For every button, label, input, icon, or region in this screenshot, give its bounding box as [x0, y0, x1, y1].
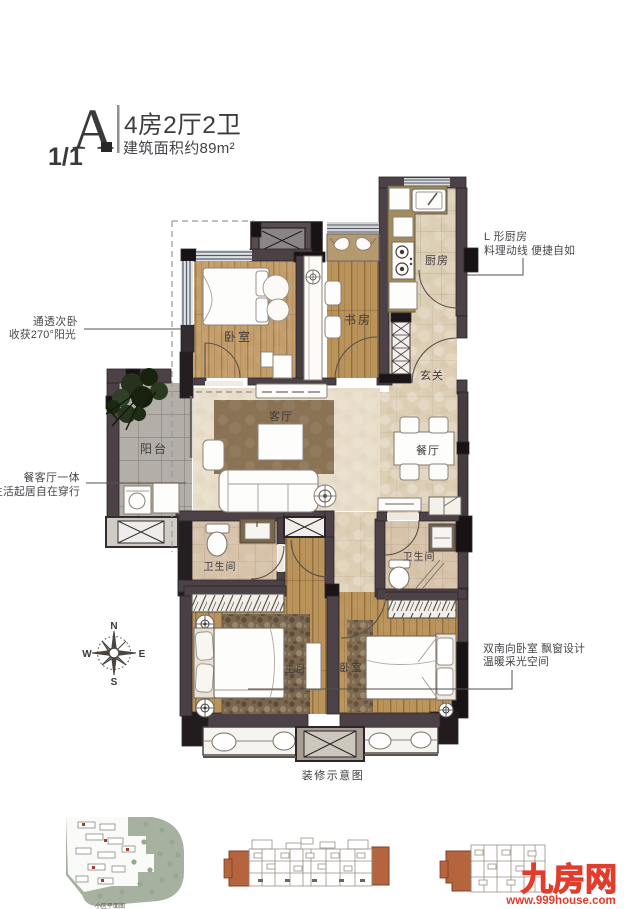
svg-text:玄关: 玄关	[420, 368, 444, 382]
svg-text:九房网: 九房网	[521, 861, 617, 897]
svg-text:装修示意图: 装修示意图	[302, 768, 365, 782]
svg-text:料理动线 便捷自如: 料理动线 便捷自如	[484, 243, 575, 257]
svg-text:卧室: 卧室	[224, 329, 252, 344]
svg-text:双南向卧室 飘窗设计: 双南向卧室 飘窗设计	[483, 641, 585, 655]
svg-text:E: E	[139, 649, 146, 660]
svg-text:阳台: 阳台	[140, 441, 168, 456]
svg-text:厨房: 厨房	[425, 254, 449, 267]
svg-text:温暖采光空间: 温暖采光空间	[483, 654, 549, 668]
svg-text:1/1: 1/1	[48, 143, 83, 171]
svg-text:建筑面积约89m²: 建筑面积约89m²	[123, 140, 235, 157]
svg-text:卫生间: 卫生间	[403, 550, 436, 563]
svg-text:小区平面图: 小区平面图	[95, 902, 125, 909]
svg-text:生活起居自在穿行: 生活起居自在穿行	[0, 484, 80, 498]
svg-text:通透次卧: 通透次卧	[33, 314, 78, 328]
svg-text:餐厅: 餐厅	[416, 443, 440, 457]
svg-text:客厅: 客厅	[269, 409, 293, 423]
svg-text:收获270°阳光: 收获270°阳光	[9, 327, 76, 341]
svg-text:书房: 书房	[344, 312, 372, 327]
svg-text:www.999house.com: www.999house.com	[505, 895, 616, 907]
svg-text:N: N	[110, 621, 117, 632]
svg-text:S: S	[111, 677, 118, 688]
svg-text:卧室: 卧室	[340, 661, 363, 674]
svg-text:4房2厅2卫: 4房2厅2卫	[124, 111, 241, 139]
svg-text:主卧: 主卧	[285, 662, 308, 675]
svg-text:L 形厨房: L 形厨房	[484, 230, 528, 243]
svg-text:卫生间: 卫生间	[204, 560, 237, 573]
svg-text:餐客厅一体: 餐客厅一体	[24, 470, 80, 484]
svg-text:W: W	[82, 649, 92, 660]
